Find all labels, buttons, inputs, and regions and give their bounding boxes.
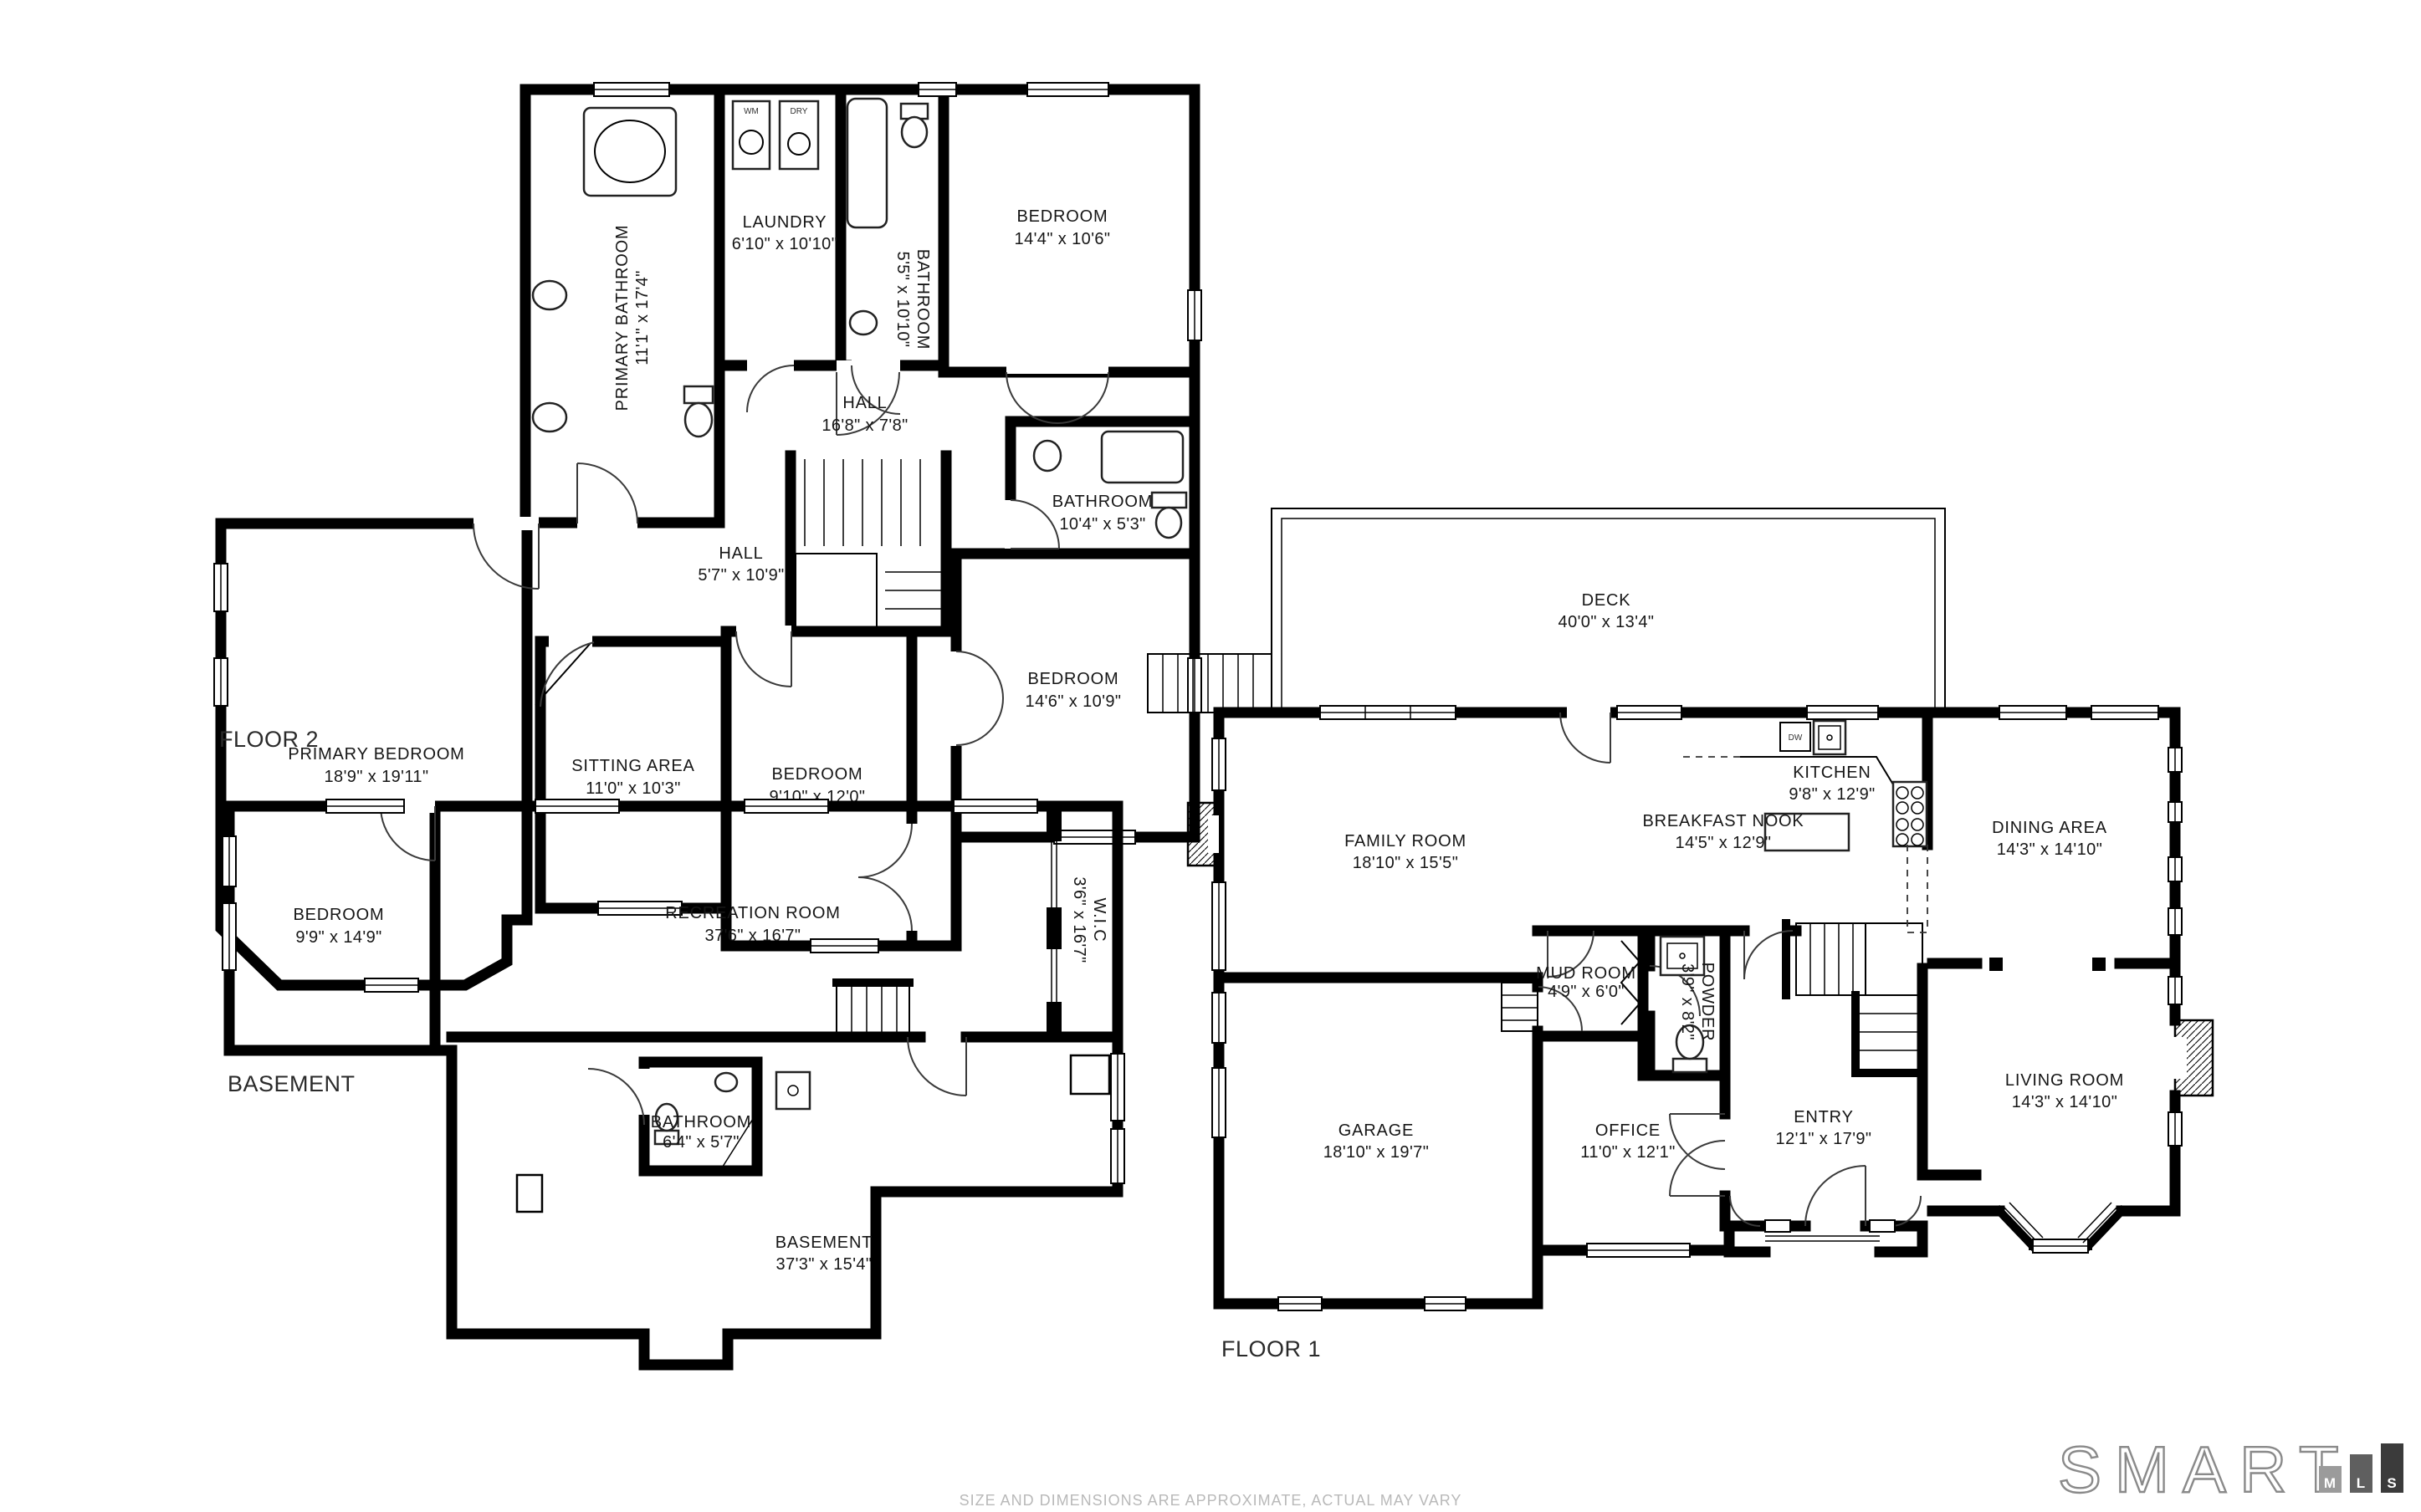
room-label-breakfast-nook: BREAKFAST NOOK	[1642, 812, 1804, 830]
room-label-laundry: LAUNDRY	[743, 213, 827, 232]
room-label-kitchen: KITCHEN	[1793, 764, 1871, 782]
room-label-bedroom-1: BEDROOM	[1017, 207, 1108, 226]
smartmls-logo: SMART M L S	[2058, 1433, 2403, 1506]
room-dims-recreation-room: 37'6" x 16'7"	[705, 927, 801, 945]
sink-icon	[533, 281, 566, 309]
room-label-wic: W.I.C	[1090, 898, 1108, 942]
room-dims-kitchen: 9'8" x 12'9"	[1789, 785, 1875, 804]
room-dims-primary-bedroom: 18'9" x 19'11"	[325, 768, 429, 786]
room-label-garage: GARAGE	[1338, 1121, 1414, 1140]
room-label-bathroom-upper: BATHROOM	[914, 249, 932, 350]
floor1-deck	[1148, 508, 1945, 713]
basement-doors	[381, 806, 966, 1125]
room-dims-hall-2: 5'7" x 10'9"	[698, 566, 784, 585]
stove-icon	[1893, 782, 1927, 846]
room-dims-breakfast-nook: 14'5" x 12'9"	[1676, 834, 1772, 852]
room-dims-sitting-area: 11'0" x 10'3"	[586, 779, 680, 798]
room-dims-primary-bathroom: 11'1" x 17'4"	[633, 270, 652, 365]
disclaimer-text: SIZE AND DIMENSIONS ARE APPROXIMATE, ACT…	[960, 1492, 1462, 1509]
room-label-primary-bathroom: PRIMARY BATHROOM	[613, 225, 632, 411]
floorplan-svg: WM DRY PRIMARY BATHROOM 11'1" x 17'4" LA…	[0, 0, 2421, 1512]
dishwasher-label: DW	[1789, 733, 1803, 743]
room-label-living-room: LIVING ROOM	[2005, 1071, 2124, 1090]
room-dims-garage: 18'10" x 19'7"	[1323, 1143, 1429, 1162]
room-label-bedroom-3: BEDROOM	[1028, 670, 1119, 688]
room-dims-powder: 3'9" x 8'2"	[1678, 963, 1697, 1040]
footer: SIZE AND DIMENSIONS ARE APPROXIMATE, ACT…	[960, 1492, 1462, 1509]
utility-sink-icon	[776, 1072, 810, 1109]
room-dims-bathroom-upper: 5'5" x 10'10"	[893, 252, 912, 348]
room-label-recreation-room: RECREATION ROOM	[665, 904, 840, 922]
utility-box	[1071, 1055, 1109, 1094]
room-label-basement-bathroom: BATHROOM	[651, 1113, 751, 1131]
room-dims-bedroom-3: 14'6" x 10'9"	[1026, 692, 1122, 711]
washer-label: WM	[744, 107, 759, 116]
logo-letter-m: M	[2324, 1475, 2336, 1491]
toilet-icon	[1673, 1059, 1707, 1072]
room-label-office: OFFICE	[1595, 1121, 1661, 1140]
room-dims-basement-bathroom: 6'4" x 5'7"	[663, 1133, 740, 1152]
logo-letter-l: L	[2357, 1475, 2365, 1491]
sink-icon	[1034, 441, 1061, 471]
room-label-hall-2: HALL	[719, 544, 763, 563]
floor1-plan: DW	[1148, 508, 2213, 1361]
floorplan-canvas: WM DRY PRIMARY BATHROOM 11'1" x 17'4" LA…	[0, 0, 2421, 1512]
basement-door-gaps	[381, 799, 652, 1115]
room-dims-hall-main: 16'8" x 7'8"	[822, 416, 908, 435]
room-label-dining-area: DINING AREA	[1992, 819, 2107, 837]
room-label-powder: POWDER	[1698, 963, 1717, 1042]
room-dims-basement-bedroom: 9'9" x 14'9"	[295, 928, 381, 947]
room-dims-basement-room: 37'3" x 15'4"	[776, 1255, 873, 1274]
logo-letter-s: S	[2387, 1475, 2396, 1491]
dryer-label: DRY	[791, 107, 808, 116]
sink-icon	[715, 1073, 737, 1091]
basement-plan: BEDROOM 9'9" x 14'9" RECREATION ROOM 37'…	[223, 799, 1124, 1365]
floor2-plan: WM DRY PRIMARY BATHROOM 11'1" x 17'4" LA…	[214, 83, 1201, 992]
sink-icon	[850, 311, 877, 335]
room-dims-living-room: 14'3" x 14'10"	[2012, 1093, 2117, 1111]
utility-box	[517, 1175, 542, 1212]
room-label-mud-room: MUD ROOM	[1536, 964, 1636, 983]
toilet-icon	[1152, 493, 1186, 508]
basement-stairs	[837, 983, 909, 1034]
room-dims-dining-area: 14'3" x 14'10"	[1997, 840, 2102, 859]
room-label-hall-main: HALL	[842, 394, 887, 412]
basement-labels: BEDROOM 9'9" x 14'9" RECREATION ROOM 37'…	[228, 876, 1108, 1274]
room-label-deck: DECK	[1582, 591, 1631, 610]
room-label-bathroom-2: BATHROOM	[1052, 493, 1153, 511]
logo-word: SMART	[2058, 1433, 2352, 1506]
sink-icon	[533, 403, 566, 432]
room-dims-bathroom-2: 10'4" x 5'3"	[1059, 515, 1145, 534]
toilet-icon	[684, 386, 713, 403]
bathtub-icon	[1102, 432, 1183, 483]
basement-wic-slider	[1047, 806, 1062, 1037]
room-dims-wic: 3'6" x 16'7"	[1070, 876, 1088, 963]
room-dims-office: 11'0" x 12'1"	[1580, 1143, 1675, 1162]
basement-walls	[229, 806, 1118, 1365]
room-dims-laundry: 6'10" x 10'10"	[732, 235, 837, 253]
room-label-sitting-area: SITTING AREA	[571, 757, 694, 775]
room-label-bedroom-2: BEDROOM	[772, 765, 863, 784]
room-dims-deck: 40'0" x 13'4"	[1559, 613, 1655, 631]
basement-title: BASEMENT	[228, 1071, 356, 1096]
floor2-stairs	[796, 459, 941, 627]
room-dims-bedroom-1: 14'4" x 10'6"	[1015, 230, 1111, 248]
floor1-title: FLOOR 1	[1221, 1336, 1321, 1361]
bathtub-icon	[847, 99, 887, 227]
room-label-family-room: FAMILY ROOM	[1344, 832, 1466, 850]
room-dims-family-room: 18'10" x 15'5"	[1353, 854, 1458, 872]
floor1-door-gaps	[1567, 706, 1610, 719]
floor2-title: FLOOR 2	[219, 727, 319, 752]
room-dims-entry: 12'1" x 17'9"	[1776, 1130, 1872, 1148]
room-label-basement-bedroom: BEDROOM	[294, 906, 385, 924]
room-dims-mud-room: 4'9" x 6'0"	[1548, 983, 1625, 1001]
room-label-entry: ENTRY	[1794, 1108, 1853, 1126]
room-label-basement-room: BASEMENT	[775, 1234, 873, 1252]
